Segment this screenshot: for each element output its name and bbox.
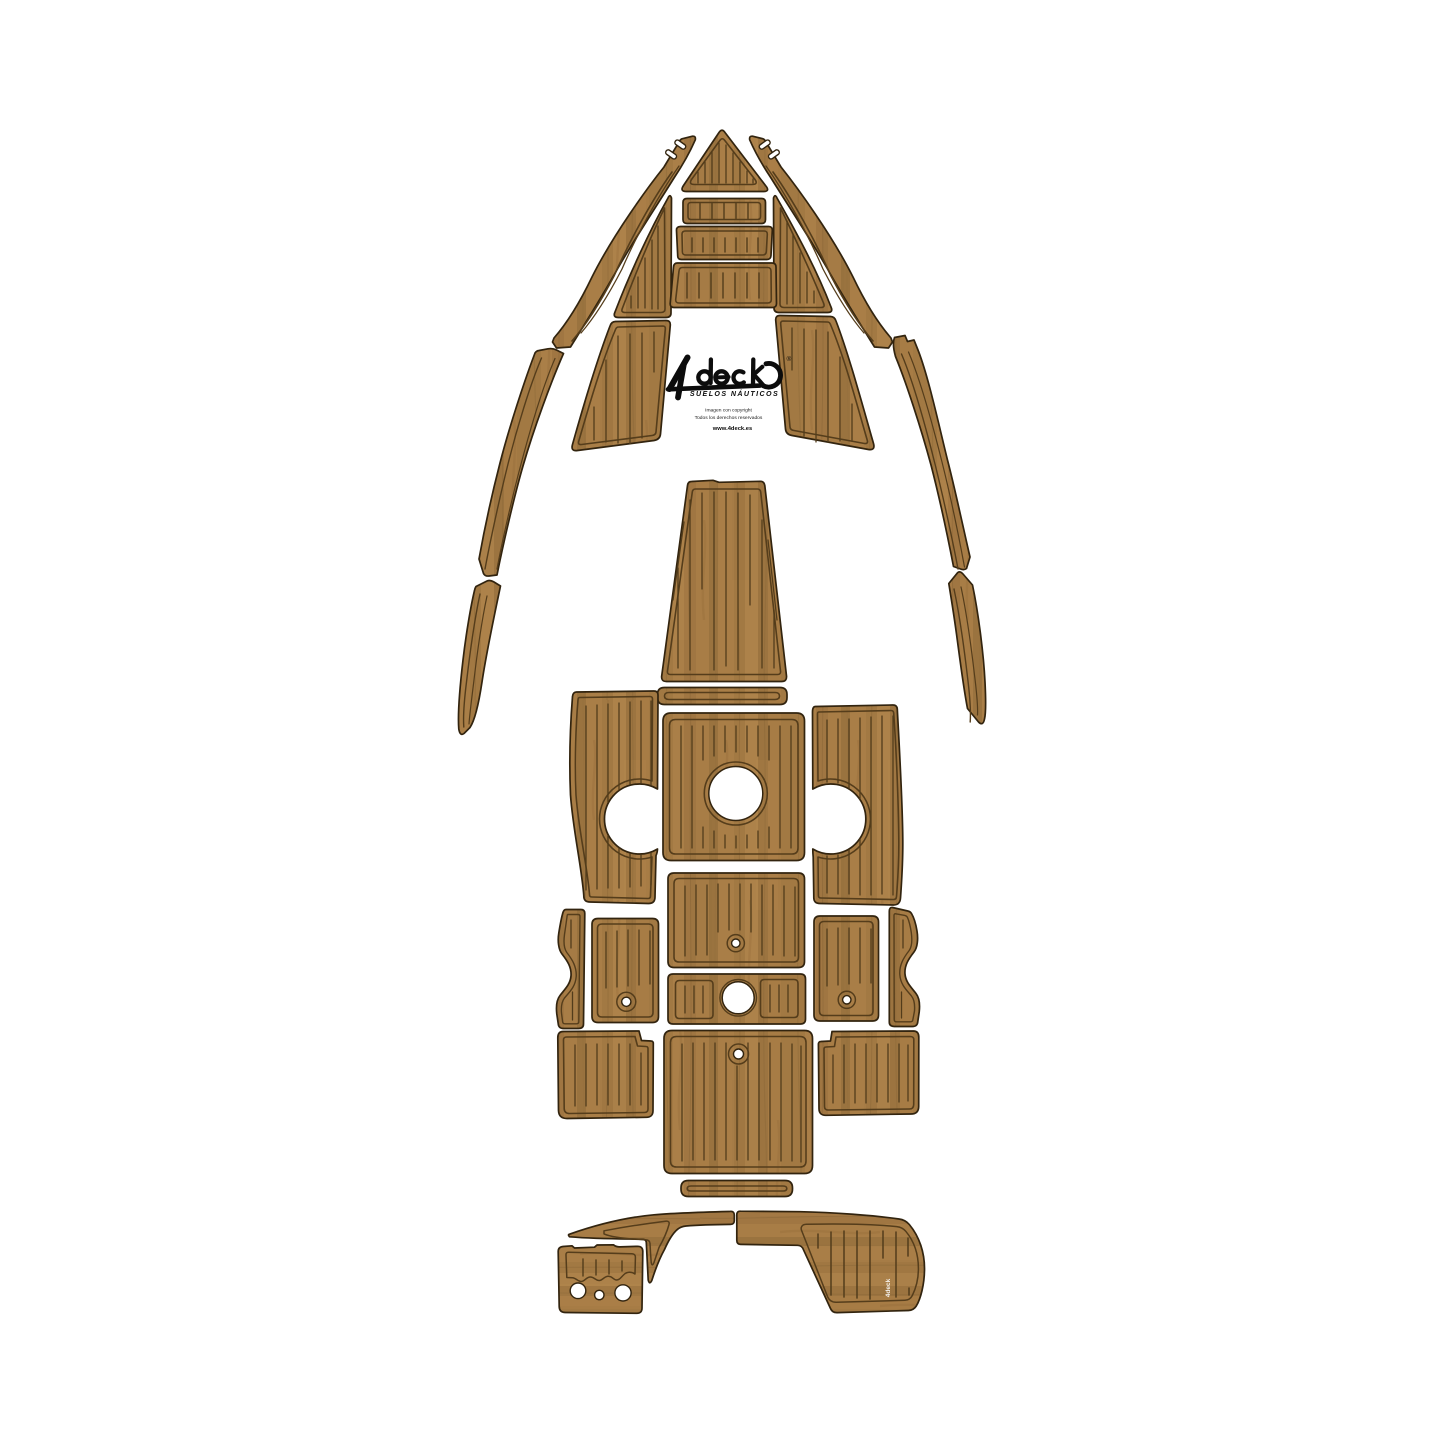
- svg-text:®: ®: [787, 355, 792, 363]
- svg-text:4deck: 4deck: [885, 1278, 892, 1297]
- svg-text:Imagen con copyright: Imagen con copyright: [705, 408, 752, 414]
- svg-text:SUELOS NÁUTICOS: SUELOS NÁUTICOS: [690, 389, 779, 398]
- svg-text:www.4deck.es: www.4deck.es: [712, 426, 752, 432]
- svg-text:Todos los derechos reservados: Todos los derechos reservados: [695, 415, 763, 421]
